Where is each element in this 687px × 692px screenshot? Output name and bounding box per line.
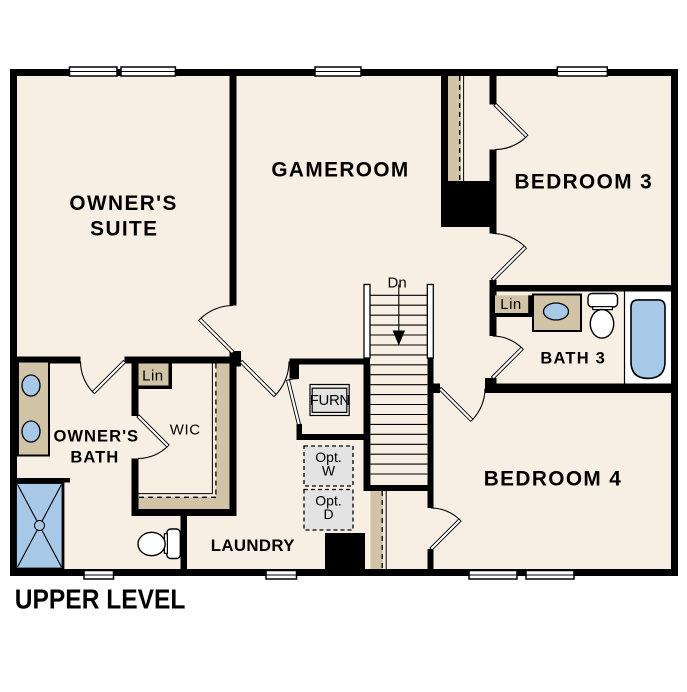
svg-text:OWNER'S: OWNER'S <box>53 426 139 445</box>
svg-text:Lin: Lin <box>500 296 522 313</box>
svg-text:OWNER'S: OWNER'S <box>69 192 177 215</box>
svg-text:LAUNDRY: LAUNDRY <box>211 536 295 555</box>
svg-text:Dn: Dn <box>388 275 407 292</box>
svg-text:BATH 3: BATH 3 <box>540 350 606 368</box>
svg-text:BEDROOM 4: BEDROOM 4 <box>484 468 623 491</box>
svg-text:BEDROOM 3: BEDROOM 3 <box>515 170 654 193</box>
svg-text:BATH: BATH <box>70 448 119 467</box>
svg-text:SUITE: SUITE <box>90 217 158 240</box>
svg-text:FURN: FURN <box>310 392 350 409</box>
svg-text:GAMEROOM: GAMEROOM <box>271 158 409 181</box>
svg-text:WIC: WIC <box>170 422 201 439</box>
svg-text:UPPER LEVEL: UPPER LEVEL <box>15 583 186 615</box>
svg-text:W: W <box>322 463 336 479</box>
svg-text:Lin: Lin <box>142 367 164 384</box>
svg-text:D: D <box>323 506 333 522</box>
